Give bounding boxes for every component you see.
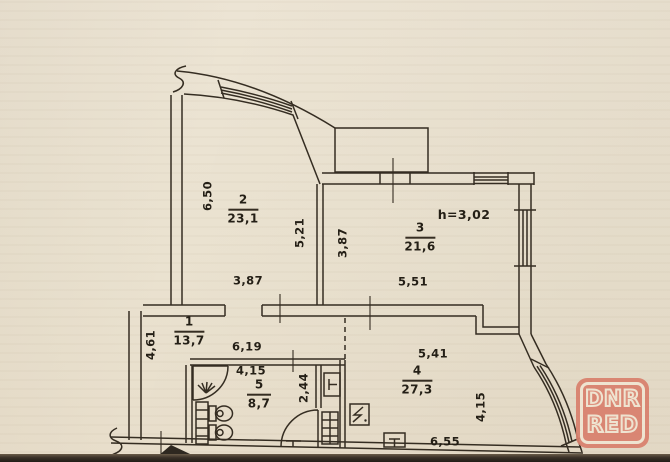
dimension-label: 6,50	[202, 181, 214, 211]
room-label-4: 427,3	[401, 365, 432, 396]
bay-window-curve	[531, 359, 580, 446]
toilet-icon	[209, 406, 233, 421]
towel-rail-icon	[196, 402, 208, 444]
room-area: 23,1	[227, 212, 258, 224]
radiator-icon	[384, 433, 405, 447]
room-number: 5	[255, 379, 263, 391]
room-divider	[402, 380, 432, 382]
room-divider	[228, 209, 258, 211]
dimension-label: 2,44	[298, 373, 310, 403]
electrical-panel-icon	[350, 404, 369, 425]
floor-plan-photo: 6,505,213,873,875,51h=3,024,616,194,152,…	[0, 0, 670, 462]
window-top-wall	[322, 172, 534, 185]
outer-walls	[109, 66, 583, 462]
watermark-line1: DNR	[585, 387, 640, 413]
room-area: 13,7	[173, 334, 204, 346]
dimension-label: 4,61	[145, 330, 157, 360]
room-divider	[405, 237, 435, 239]
washing-machine-icon	[322, 412, 338, 444]
sink-icon	[324, 373, 340, 396]
dimension-label: 5,21	[294, 218, 306, 248]
room-area: 8,7	[248, 397, 270, 409]
watermark-line2: RED	[585, 413, 640, 439]
dimension-label: 6,55	[430, 436, 460, 448]
dimension-label: 6,19	[232, 341, 262, 353]
window-right-wall	[514, 210, 536, 266]
photo-bottom-edge	[0, 454, 670, 462]
dimension-label: 3,87	[233, 275, 263, 287]
glazed-facade-top	[177, 71, 335, 184]
dimension-label: 3,87	[337, 228, 349, 258]
room-number: 2	[239, 194, 247, 206]
height-note: h=3,02	[438, 209, 491, 222]
room-area: 21,6	[404, 240, 435, 252]
balcony-outline	[335, 128, 428, 172]
room-label-3: 321,6	[404, 222, 435, 253]
bidet-icon	[209, 425, 233, 440]
room-label-2: 223,1	[227, 194, 258, 225]
watermark-text: DNR RED	[585, 387, 640, 439]
room-divider	[247, 394, 271, 396]
room-divider	[174, 331, 204, 333]
room-label-1: 113,7	[173, 316, 204, 347]
shower-icon	[193, 366, 228, 400]
watermark-badge: DNR RED	[576, 378, 649, 448]
room-number: 4	[413, 365, 421, 377]
room-area: 27,3	[401, 383, 432, 395]
dimension-label: 4,15	[475, 392, 487, 422]
dimension-label: 5,41	[418, 348, 448, 360]
room-number: 3	[416, 222, 424, 234]
dimension-label: 5,51	[398, 276, 428, 288]
room-number: 1	[185, 316, 193, 328]
room-label-5: 58,7	[247, 379, 271, 410]
dimension-label: 4,15	[236, 365, 266, 377]
